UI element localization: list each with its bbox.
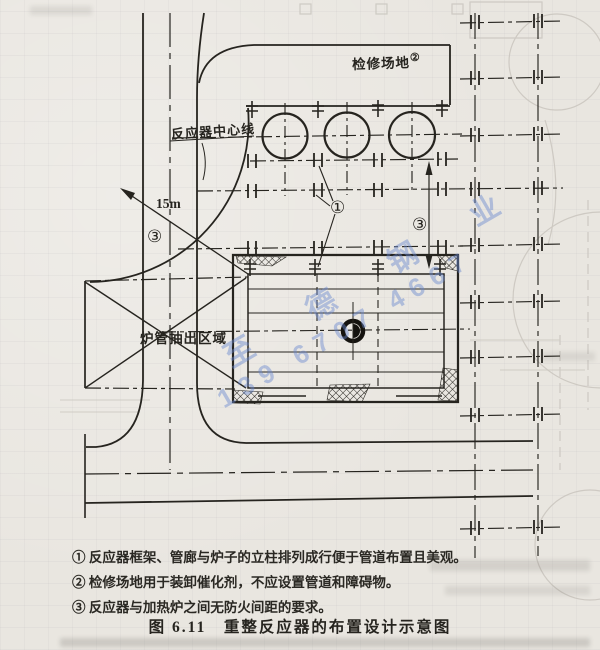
maintenance-area-label: 检修场地② [352, 51, 421, 74]
horizontal-road-centerline [85, 470, 533, 474]
pipe-rack-grid [460, 13, 563, 558]
roads [85, 13, 533, 518]
grid-row-248 [178, 246, 463, 249]
radius-15m-label: 15m [156, 196, 181, 212]
book-page: 至 德 钢 业 139 6707 4667 反应器中心线 检修场地② 15m 炉… [0, 0, 600, 650]
radius-arrowhead [120, 188, 135, 200]
callout-3-right: ③ [412, 216, 427, 233]
maintenance-area-text: 检修场地 [352, 55, 410, 72]
vertical-road-right-edge [197, 13, 246, 443]
grid-row-160 [250, 159, 458, 161]
horizontal-road-top-edge [246, 441, 533, 443]
grid-row-190 [197, 188, 563, 191]
callout-1: ① [330, 199, 345, 216]
bleed-smudge [445, 586, 590, 595]
bleed-smudge [30, 6, 92, 15]
bleed-smudge [430, 560, 590, 571]
tube-pull-area-label: 炉管抽出区域 [140, 327, 227, 347]
figure-caption: 图 6.11 重整反应器的布置设计示意图 [0, 615, 600, 637]
figure-notes: ① 反应器框架、管廊与炉子的立柱排列成行便于管道布置且美观。 ② 检修场地用于装… [72, 545, 552, 620]
callout-3-left: ③ [147, 228, 162, 245]
maintenance-note-ref: ② [410, 52, 420, 64]
bleed-smudge [60, 638, 590, 647]
bleed-smudge [540, 352, 595, 361]
bleed-through-ghosts [60, 2, 600, 600]
horizontal-road-bottom-edge [85, 496, 533, 503]
